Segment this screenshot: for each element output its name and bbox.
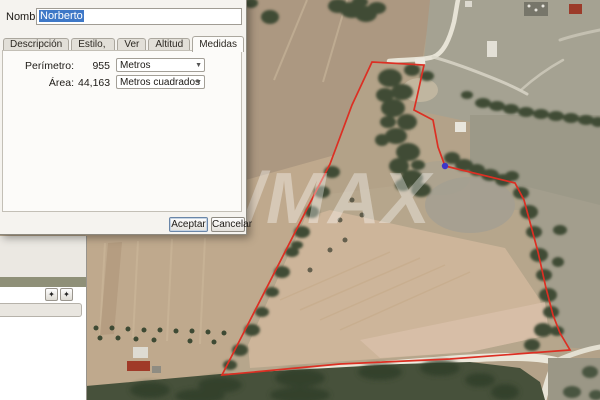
chevron-down-icon: ▼ <box>195 76 202 89</box>
area-unit-select[interactable]: Metros cuadrados ▼ <box>116 75 205 89</box>
accept-button[interactable]: Aceptar <box>169 217 208 232</box>
perimeter-value: 955 <box>78 60 110 72</box>
name-input-selected-text: Norberto <box>39 10 84 22</box>
name-input[interactable]: Norberto <box>36 8 242 25</box>
dialog-tabs: Descripción Estilo, color Ver Altitud Me… <box>3 36 246 51</box>
search-star-button-2[interactable]: ✦ <box>60 288 73 301</box>
perimeter-label: Perímetro: <box>12 60 74 72</box>
cancel-button[interactable]: Cancelar <box>211 217 245 232</box>
sidebar-divider-bar <box>0 277 86 287</box>
area-label: Área: <box>12 77 74 89</box>
area-unit-value: Metros cuadrados <box>120 77 200 88</box>
parcel-vertex-marker[interactable] <box>442 163 448 169</box>
perimeter-unit-select[interactable]: Metros ▼ <box>116 58 205 72</box>
chevron-down-icon: ▼ <box>195 59 202 72</box>
perimeter-unit-value: Metros <box>120 60 151 71</box>
area-value: 44,163 <box>78 77 110 89</box>
places-sidebar: ✦ ✦ <box>0 236 87 400</box>
search-star-button-1[interactable]: ✦ <box>45 288 58 301</box>
sidebar-panel-top <box>0 236 86 278</box>
properties-dialog: Nombre: Norberto Descripción Estilo, col… <box>0 0 247 235</box>
sidebar-collapsed-header[interactable] <box>0 303 82 317</box>
tab-medidas[interactable]: Medidas <box>192 36 244 52</box>
